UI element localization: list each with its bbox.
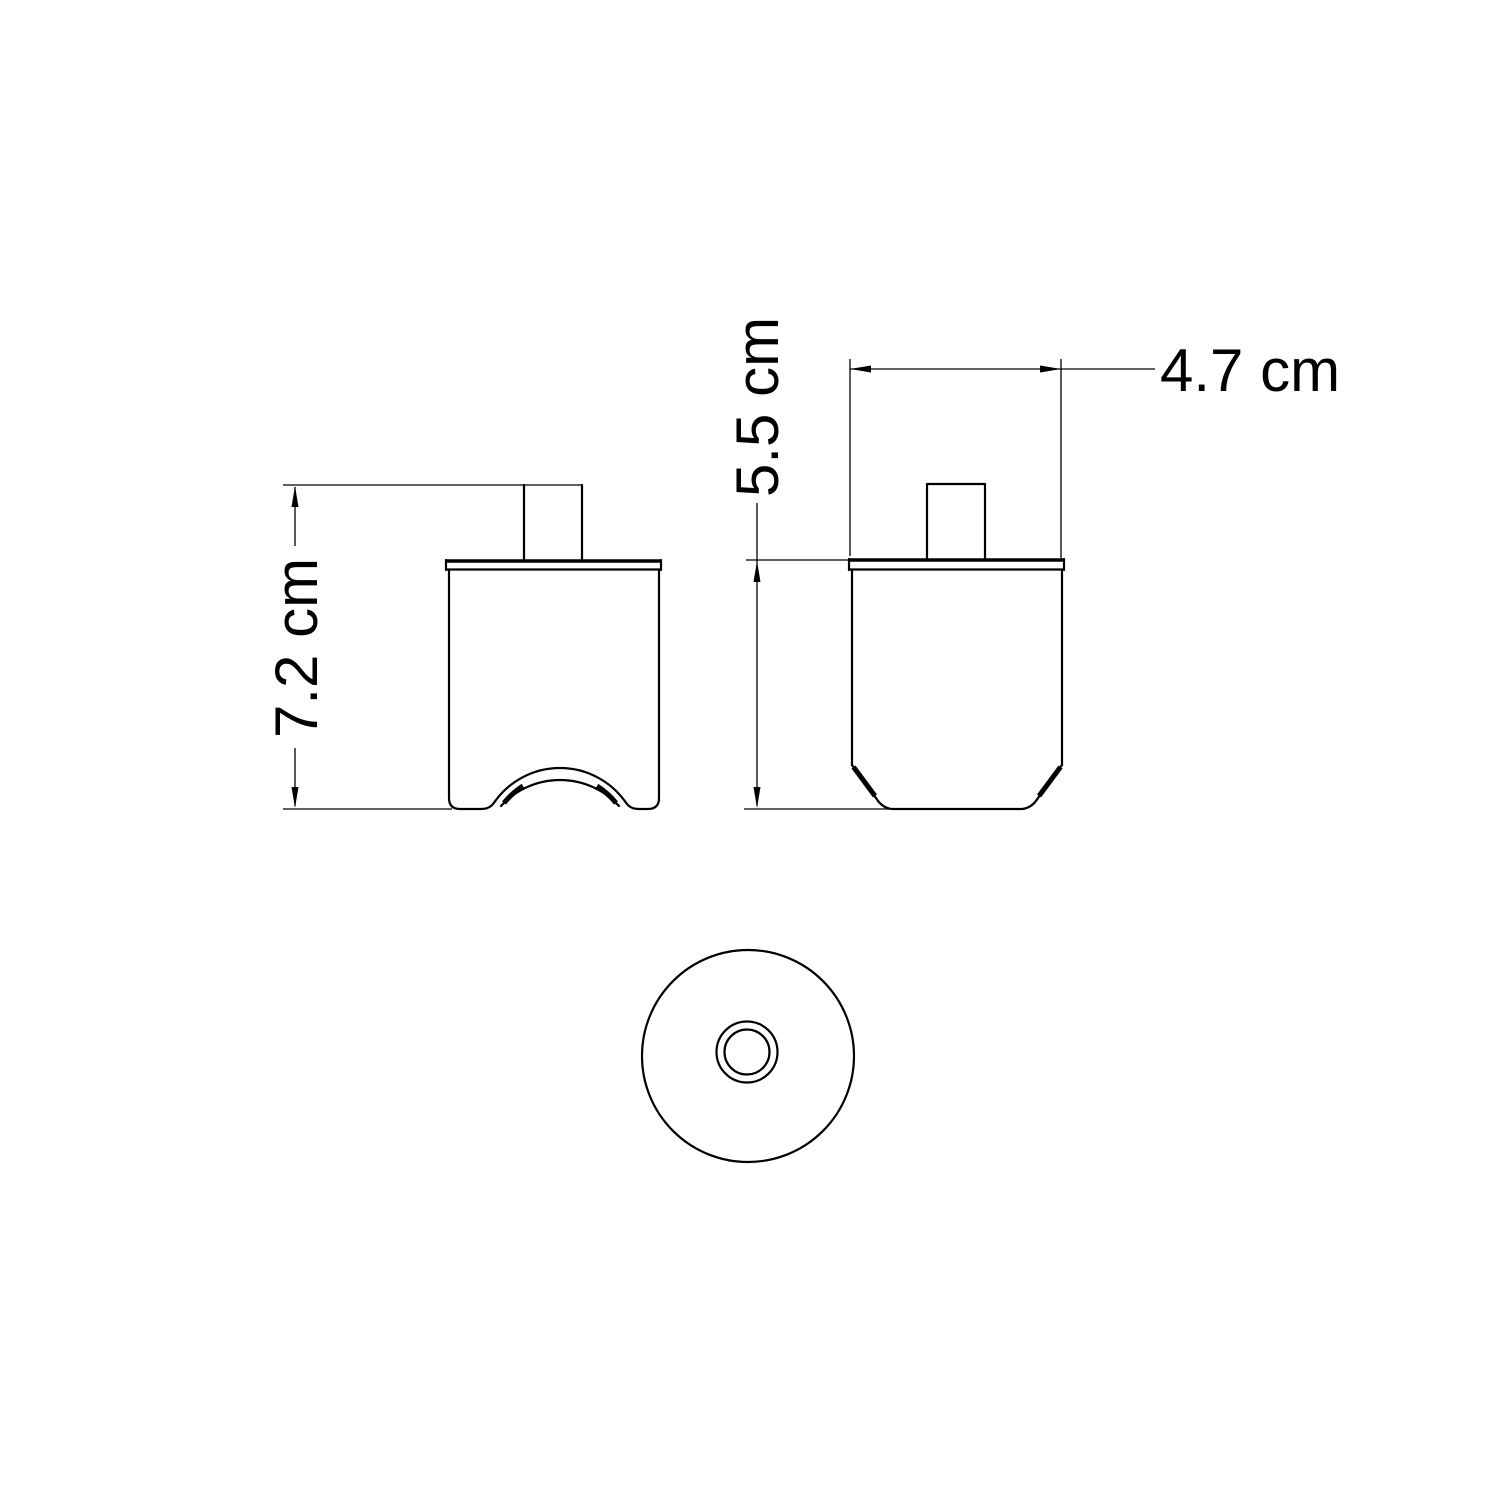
side-view xyxy=(446,485,661,809)
dimension-body-width-arrow-left xyxy=(850,366,871,373)
bottom-view-hole-outer-circle xyxy=(717,1022,778,1083)
dimension-total-height: 7.2 cm xyxy=(263,485,582,809)
dimension-body-width-label: 4.7 cm xyxy=(1160,337,1340,404)
dimension-body-width: 4.7 cm xyxy=(850,337,1340,558)
dimension-body-height-arrow-down xyxy=(754,787,761,808)
front-view-chamfer-right xyxy=(1039,767,1061,796)
technical-drawing: 7.2 cm 4.7 cm xyxy=(0,0,1500,1500)
dimension-total-height-arrow-down xyxy=(292,787,299,808)
front-view-body-bottom xyxy=(852,765,1062,809)
dimension-total-height-label: 7.2 cm xyxy=(263,558,330,738)
dimension-body-width-arrow-right xyxy=(1040,366,1061,373)
dimension-body-height-label: 5.5 cm xyxy=(724,317,791,497)
dimension-body-height: 5.5 cm xyxy=(724,317,890,809)
front-view-body-sides xyxy=(852,570,1062,765)
side-view-cable-arch-inner xyxy=(501,780,619,806)
front-view-stem xyxy=(927,484,985,560)
dimension-body-height-arrow-up xyxy=(754,561,761,582)
bottom-view-outer-circle xyxy=(642,950,854,1162)
dimension-total-height-arrow-up xyxy=(292,486,299,507)
side-view-body-outline xyxy=(449,570,659,809)
bottom-view xyxy=(642,950,854,1162)
front-view-chamfer-left xyxy=(854,767,876,796)
side-view-stem xyxy=(524,485,582,561)
bottom-view-hole-inner-circle xyxy=(725,1030,770,1075)
front-view xyxy=(849,484,1064,809)
technical-drawing-page: 7.2 cm 4.7 cm xyxy=(0,0,1500,1500)
